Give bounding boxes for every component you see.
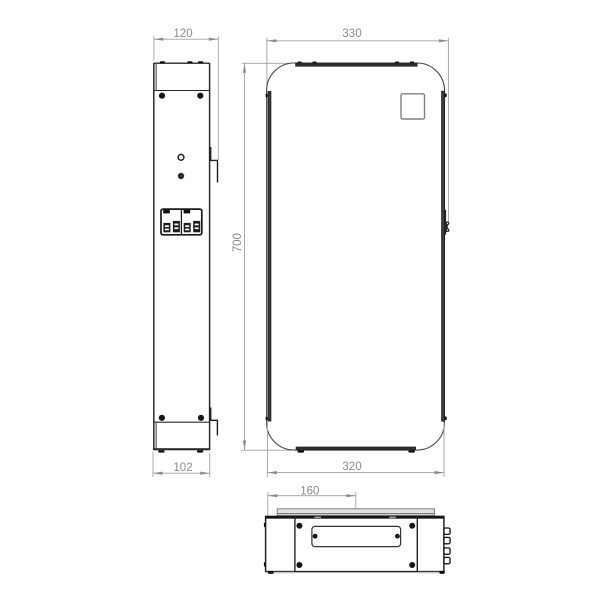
svg-text:320: 320 [342, 461, 361, 473]
svg-text:102: 102 [173, 462, 192, 474]
svg-text:330: 330 [342, 28, 361, 40]
svg-text:700: 700 [232, 233, 244, 252]
svg-text:120: 120 [173, 28, 192, 40]
svg-text:160: 160 [300, 486, 319, 498]
